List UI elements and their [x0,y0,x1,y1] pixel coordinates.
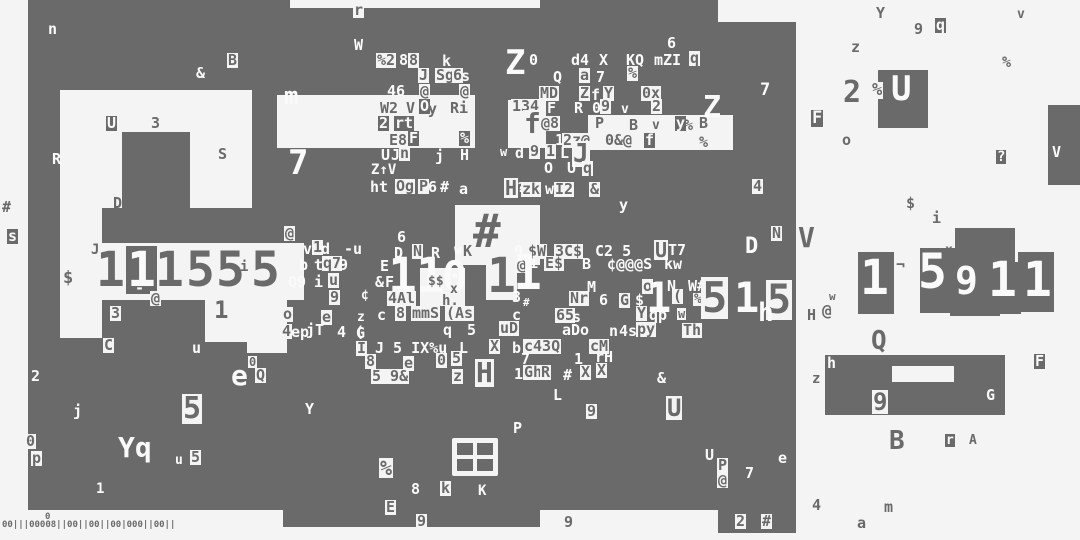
glyph: i [932,211,941,226]
glitch-block [718,505,796,533]
glyph: u [328,273,339,288]
glitch-block [718,0,796,22]
glyph: m [284,84,298,108]
glyph: 6 [667,36,676,51]
glyph: jT [306,323,324,338]
glyph: & [375,275,384,290]
glyph: m [883,500,894,515]
glyph: 8 [408,53,419,68]
glyph: @ [284,226,295,241]
glyph: 0 [529,53,538,68]
glyph: 4s [619,324,637,339]
glitch-canvas: n&Bm7U3SRD#sJ$11-155i5@31Cu2j0p5Yq1u5e0Q… [0,0,1080,540]
glyph: a [857,516,866,531]
glyph: @ [459,84,470,99]
glyph: Y [636,306,647,321]
glyph: X [599,53,608,68]
glyph: 5 [182,394,202,424]
glyph: Q [553,70,562,85]
glyph: U [106,116,117,131]
glyph: 6 [599,293,608,308]
glyph: G [619,293,630,308]
window-pane [477,459,493,471]
glyph: R [540,365,551,380]
glyph: 0 [436,353,447,368]
glyph: i [240,260,248,274]
glyph: W [354,38,363,53]
glyph: % [379,458,393,478]
glyph: K [478,484,486,498]
glyph: F [1034,354,1045,369]
glyph: u [192,341,201,356]
glyph: $ [63,270,73,287]
glyph: h [827,356,836,371]
glyph: z [812,372,820,386]
glyph: Q9 [288,275,306,290]
glyph: 1 [734,277,759,319]
glyph: j [73,404,82,419]
glyph: 2 [378,116,389,131]
glyph: z [851,40,860,55]
glyph: 7 [288,146,308,180]
glyph: 3 [151,116,160,131]
glyph: 9 [914,22,923,37]
glyph: 1 [1023,256,1052,304]
glyph: @ [821,303,833,319]
glyph: 9 [955,262,978,300]
glyph: 5 [451,351,462,366]
glyph: q [689,51,700,66]
glitch-block [290,0,540,8]
glyph: 6 [397,230,406,245]
glyph: 9 [564,515,573,530]
glyph: S [218,147,227,162]
glyph: k [440,481,451,496]
glyph: 1 [514,367,523,382]
glyph: u [175,454,183,467]
glyph: 1 [214,298,228,322]
glyph: 8 [395,306,406,321]
glyph: q [582,161,593,176]
glyph: H [459,148,470,163]
glyph: v [303,242,312,257]
glyph: & [196,66,205,81]
glyph: Yq [118,434,152,462]
glyph: 46 [387,84,405,99]
glyph: 0 [25,434,36,449]
glyph: 00|||00008||00||00||00|000||00|| [2,521,175,530]
glyph: Q [255,368,266,383]
glyph: y [428,102,437,117]
glyph: Th [682,323,702,338]
glyph: R [574,101,583,116]
glyph: ? [996,150,1006,164]
glyph: h [758,300,774,326]
glyph: U [891,72,911,106]
glyph: 1 [155,246,184,294]
glyph: $ [906,196,915,211]
glyph: @8 [540,116,560,131]
glyph: n [609,324,618,339]
glyph: 9 [529,144,540,159]
glyph: 5 [918,248,947,296]
glyph: 1 [988,256,1017,304]
glyph: # [563,368,572,383]
glyph: @ [150,291,161,306]
glyph: Q [871,328,887,354]
glitch-block [277,95,475,148]
glyph: E [385,500,396,515]
glyph: ( [672,289,683,304]
glyph: aDo [562,323,589,338]
glyph: 4 [811,498,822,513]
glyph: y [619,198,628,213]
glyph: 1 [545,144,556,159]
glyph: e [231,362,248,390]
glyph: Og [395,179,415,194]
glyph: -u [344,242,362,257]
glyph: ¢@@@S [607,257,652,272]
glitch-block [122,132,190,208]
glyph: U [567,161,576,176]
glyph: 5 [250,246,281,294]
glyph: 5 9& [371,369,409,384]
glyph: B [582,257,591,272]
glyph: H [504,178,518,198]
glyph: Y [305,402,314,417]
glyph: 1 [96,482,104,496]
glyph: a [459,182,468,197]
glyph: q [443,323,452,338]
glyph: 3 [110,306,121,321]
glyph: & [589,182,600,197]
glyph: f [644,133,655,148]
glyph: o [282,307,293,322]
glyph: 5 [701,277,728,319]
glyph: Z↑V [371,163,396,177]
glyph: % [684,118,693,133]
glyph: Ri [450,101,468,116]
glyph: 2 [651,99,662,114]
glyph: s [7,229,18,244]
glyph: w [500,146,507,158]
glyph: 9 [586,404,597,419]
glyph: % [699,135,708,150]
glyph: - [135,281,144,296]
glyph: 9 [872,390,888,414]
glyph: B [889,428,905,454]
glyph: 1 [388,252,417,300]
glyph: 2 [31,369,40,384]
glyph: r [945,434,955,447]
glyph: X [596,363,607,378]
window-pane [457,443,473,455]
glyph: A [969,434,977,447]
glyph: Z [703,93,721,123]
glyph: X [489,339,500,354]
glyph: 6 [428,180,437,195]
glyph: b [512,341,521,356]
window-pane [457,459,473,471]
glyph: 5 [190,450,201,465]
glyph: q [935,18,946,33]
glyph: 2 [843,78,861,108]
glitch-block [892,366,954,382]
glyph: # [761,514,772,529]
glyph: 4 [752,179,763,194]
glitch-block [205,300,253,342]
glyph: % [627,66,638,81]
glyph: % [459,131,470,146]
glyph: V [798,224,815,252]
glyph: P [595,116,604,131]
glyph: %2 [376,53,396,68]
glyph: z [357,311,365,324]
glyph: d [515,146,524,161]
glyph: 1 [860,254,889,302]
glyph: # [2,200,11,215]
glyph: 5 [467,323,476,338]
glyph: ht [370,180,388,195]
glyph: c [377,308,386,323]
glyph: 9 [600,99,611,114]
glyph: H [807,308,816,323]
glyph: Y [876,6,885,21]
glyph: 3 [512,290,521,305]
glyph: Nr [569,291,589,306]
glyph: b [299,258,308,273]
glyph: 5 [185,246,216,294]
glyph: (As [445,306,474,321]
glyph: zk [521,182,541,197]
glyph: R [52,152,61,167]
glyph: V [1052,145,1061,160]
glitch-block [825,355,1005,415]
glyph: v [1017,8,1025,21]
glyph: 1 [96,246,125,294]
glyph: % [871,82,883,99]
glyph: ¬ [896,258,905,273]
glyph: E$ [544,256,564,271]
glyph: % [1002,55,1011,70]
glyph: G [985,388,996,403]
glyph: U [381,148,390,163]
glyph: w [677,308,686,320]
glyph: 9 [339,258,348,273]
glyph: v [621,103,629,116]
glyph: @ [717,473,728,488]
glyph: py [636,322,656,337]
glyph: # [523,297,530,308]
glyph: 0 [45,513,50,522]
glyph: i [314,275,323,290]
glyph: r [353,3,364,18]
window-pane [477,443,493,455]
glyph: $$ [428,275,444,288]
glyph: n [48,22,57,37]
glyph: U [666,396,682,420]
glyph: kw [664,257,682,272]
glyph: H [475,359,494,387]
glyph: p [31,451,42,466]
window-grid-icon [452,438,498,476]
glyph: D [744,236,759,258]
glyph: mmS [411,306,440,321]
glyph: 0&@ [604,133,633,148]
glyph: a [579,68,590,83]
glyph: Z [505,46,525,80]
glyph: N [771,226,782,241]
glyph: 7 [760,82,770,99]
glyph: mZI [654,53,681,68]
glyph: X [580,365,591,380]
glyph: F [408,131,419,146]
glyph: I2 [554,182,574,197]
glyph: B [227,53,238,68]
glyph: # [440,180,449,195]
glyph: 9 [329,290,340,305]
glyph: 2 [735,514,746,529]
glyph: 9 [416,514,427,529]
glyph: F [811,110,823,127]
glyph: O [544,161,553,176]
glyph: C [103,338,114,353]
glyph: z [452,369,463,384]
glyph: j [435,149,444,164]
glyph: P [513,421,522,436]
glyph: U [705,448,714,463]
glyph: J [418,68,429,83]
glyph: o [842,133,851,148]
glyph: uD [499,321,519,336]
glyph: D [113,196,122,211]
glyph: 7 [596,70,605,85]
glyph: e [778,451,787,466]
glyph: L [553,388,562,403]
glyph: ¢ [361,289,369,302]
glyph: & [657,371,666,386]
glyph: 8 [411,482,420,497]
glyph: 7 [745,466,754,481]
glitch-block [283,505,540,527]
glyph: w [545,182,554,197]
glyph: n [399,146,410,161]
glyph: 8 [399,53,408,68]
